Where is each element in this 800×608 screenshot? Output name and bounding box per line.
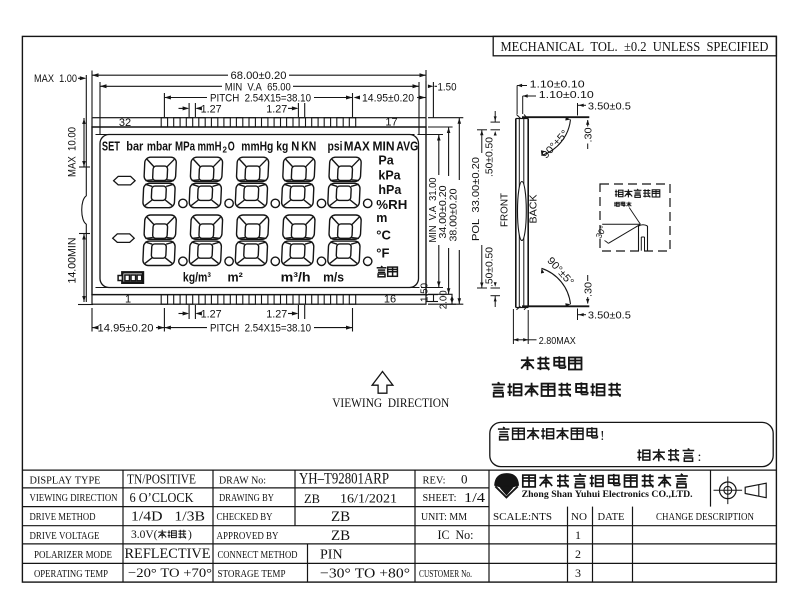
svg-text:2: 2 xyxy=(575,547,581,561)
svg-text:YH–T92801ARP: YH–T92801ARP xyxy=(299,471,389,488)
svg-text:3: 3 xyxy=(575,566,581,580)
svg-text:PIN: PIN xyxy=(320,547,343,562)
svg-text:mmHg: mmHg xyxy=(241,139,273,153)
svg-text:1/4: 1/4 xyxy=(464,491,485,506)
svg-text:2.80MAX: 2.80MAX xyxy=(539,335,576,347)
svg-text:.50±0.50: .50±0.50 xyxy=(484,137,496,177)
svg-text:3.50±0.5: 3.50±0.5 xyxy=(588,310,631,322)
svg-text:m³/h: m³/h xyxy=(281,271,311,285)
svg-text:1.27: 1.27 xyxy=(266,309,287,321)
svg-text:mmH: mmH xyxy=(198,139,222,153)
svg-text:MIN: MIN xyxy=(373,139,395,153)
svg-text:TN/POSITIVE: TN/POSITIVE xyxy=(127,472,196,487)
svg-text:−20° TO +70°: −20° TO +70° xyxy=(128,565,212,580)
svg-text:38.00±0.20: 38.00±0.20 xyxy=(448,188,460,241)
svg-text:1.50: 1.50 xyxy=(418,283,430,302)
svg-text:PITCH 2.54X15=38.10: PITCH 2.54X15=38.10 xyxy=(210,323,311,335)
svg-text:1.27: 1.27 xyxy=(201,309,222,321)
svg-text:IC No:: IC No: xyxy=(438,527,474,542)
svg-text:−30° TO +80°: −30° TO +80° xyxy=(320,566,410,581)
svg-text:FRONT: FRONT xyxy=(500,193,511,227)
svg-text:hPa: hPa xyxy=(378,183,402,197)
svg-text:STORAGE TEMP: STORAGE TEMP xyxy=(218,568,286,580)
svg-text:kPa: kPa xyxy=(378,169,401,183)
svg-text:KN: KN xyxy=(301,139,316,153)
svg-text:POL 33.00±0.20: POL 33.00±0.20 xyxy=(470,157,482,241)
svg-text:bar: bar xyxy=(126,139,143,153)
svg-text:CONNECT METHOD: CONNECT METHOD xyxy=(218,549,298,561)
svg-text:1.10±0.10: 1.10±0.10 xyxy=(539,89,594,101)
svg-text:DRIVE VOLTAGE: DRIVE VOLTAGE xyxy=(30,530,100,542)
svg-text:ZB: ZB xyxy=(331,528,350,544)
svg-text:Pa: Pa xyxy=(378,153,394,167)
svg-text:mbar: mbar xyxy=(147,139,172,153)
svg-text:1: 1 xyxy=(575,528,581,542)
svg-text:1/4D 1/3B: 1/4D 1/3B xyxy=(131,508,205,523)
svg-text:SHEET:: SHEET: xyxy=(423,492,457,504)
svg-text:ZB: ZB xyxy=(331,509,350,525)
svg-text:°F: °F xyxy=(376,245,389,260)
svg-text:MAX 10.00: MAX 10.00 xyxy=(67,127,79,177)
svg-text:ZB: ZB xyxy=(304,492,320,506)
svg-text:REFLECTIVE: REFLECTIVE xyxy=(125,546,211,562)
svg-text:3.0V(: 3.0V( xyxy=(131,529,158,541)
svg-text:CHECKED BY: CHECKED BY xyxy=(217,511,273,523)
svg-text:MAX: MAX xyxy=(344,139,371,153)
svg-text:3.50±0.5: 3.50±0.5 xyxy=(588,100,631,112)
svg-text:BACK: BACK xyxy=(529,194,540,223)
svg-text:1: 1 xyxy=(125,294,131,306)
svg-text:psi: psi xyxy=(328,139,343,153)
svg-text:.30: .30 xyxy=(583,127,595,142)
svg-text:AVG: AVG xyxy=(396,139,418,153)
svg-text:DRAWING BY: DRAWING BY xyxy=(219,492,274,504)
svg-text::: : xyxy=(698,450,702,465)
svg-text:MECHANICAL TOL. ±0.2 UNLESS: MECHANICAL TOL. ±0.2 UNLESS SPECIFIED xyxy=(501,39,769,54)
svg-text:REV:: REV: xyxy=(423,474,446,486)
svg-text:APPROVED BY: APPROVED BY xyxy=(217,530,279,542)
svg-text:16/1/2021: 16/1/2021 xyxy=(340,491,397,505)
svg-text:m/s: m/s xyxy=(323,271,344,285)
svg-text:DATE: DATE xyxy=(598,511,625,523)
svg-text:m: m xyxy=(376,211,387,225)
svg-text:kg: kg xyxy=(276,139,288,153)
svg-text:1.27: 1.27 xyxy=(201,103,222,115)
svg-text:DRIVE METHOD: DRIVE METHOD xyxy=(30,511,96,523)
svg-text:2.00: 2.00 xyxy=(438,290,450,309)
svg-text:6 O’CLOCK: 6 O’CLOCK xyxy=(130,490,194,505)
svg-text:CHANGE DESCRIPTION: CHANGE DESCRIPTION xyxy=(656,511,754,523)
svg-text:N: N xyxy=(291,139,299,153)
svg-text:CUSTOMER No.: CUSTOMER No. xyxy=(419,568,472,580)
svg-text:MAX 1.00: MAX 1.00 xyxy=(34,73,77,85)
svg-text:UNIT: MM: UNIT: MM xyxy=(421,511,467,523)
svg-text:OPERATING TEMP: OPERATING TEMP xyxy=(34,568,108,580)
svg-text:MPa: MPa xyxy=(175,139,196,153)
svg-text:SCALE:NTS: SCALE:NTS xyxy=(493,511,552,523)
svg-text:m²: m² xyxy=(228,271,243,285)
svg-text:0: 0 xyxy=(461,472,468,487)
svg-text:14.00MIN: 14.00MIN xyxy=(67,237,79,283)
svg-text:DISPLAY TYPE: DISPLAY TYPE xyxy=(30,474,101,486)
svg-text:!: ! xyxy=(600,429,605,444)
svg-text:VIEWING DIRECTION: VIEWING DIRECTION xyxy=(332,395,450,410)
svg-text:.50±0.50: .50±0.50 xyxy=(484,247,496,287)
svg-text:VIEWING DIRECTION: VIEWING DIRECTION xyxy=(30,492,118,504)
svg-text:Zhong Shan Yuhui Electronics C: Zhong Shan Yuhui Electronics CO.,LTD. xyxy=(522,490,693,500)
svg-text:16: 16 xyxy=(384,294,396,306)
svg-text:°C: °C xyxy=(376,227,391,242)
svg-text:DRAW No:: DRAW No: xyxy=(219,474,266,486)
svg-text:PITCH 2.54X15=38.10: PITCH 2.54X15=38.10 xyxy=(210,93,311,105)
svg-text:MIN V.A 65.00: MIN V.A 65.00 xyxy=(225,81,291,93)
svg-text:14.95±0.20: 14.95±0.20 xyxy=(98,323,154,335)
svg-text:SET: SET xyxy=(102,139,120,153)
svg-text:2: 2 xyxy=(223,145,228,154)
svg-text:.30: .30 xyxy=(583,282,595,297)
svg-text:NO: NO xyxy=(571,511,587,523)
svg-text:14.95±0.20: 14.95±0.20 xyxy=(362,93,414,105)
svg-text:POLARIZER MODE: POLARIZER MODE xyxy=(34,549,112,561)
svg-text:): ) xyxy=(188,529,192,541)
svg-text:1.27: 1.27 xyxy=(266,103,287,115)
svg-text:kg/m³: kg/m³ xyxy=(183,271,211,285)
svg-text:1.50: 1.50 xyxy=(438,81,457,93)
svg-text:O: O xyxy=(228,139,235,153)
